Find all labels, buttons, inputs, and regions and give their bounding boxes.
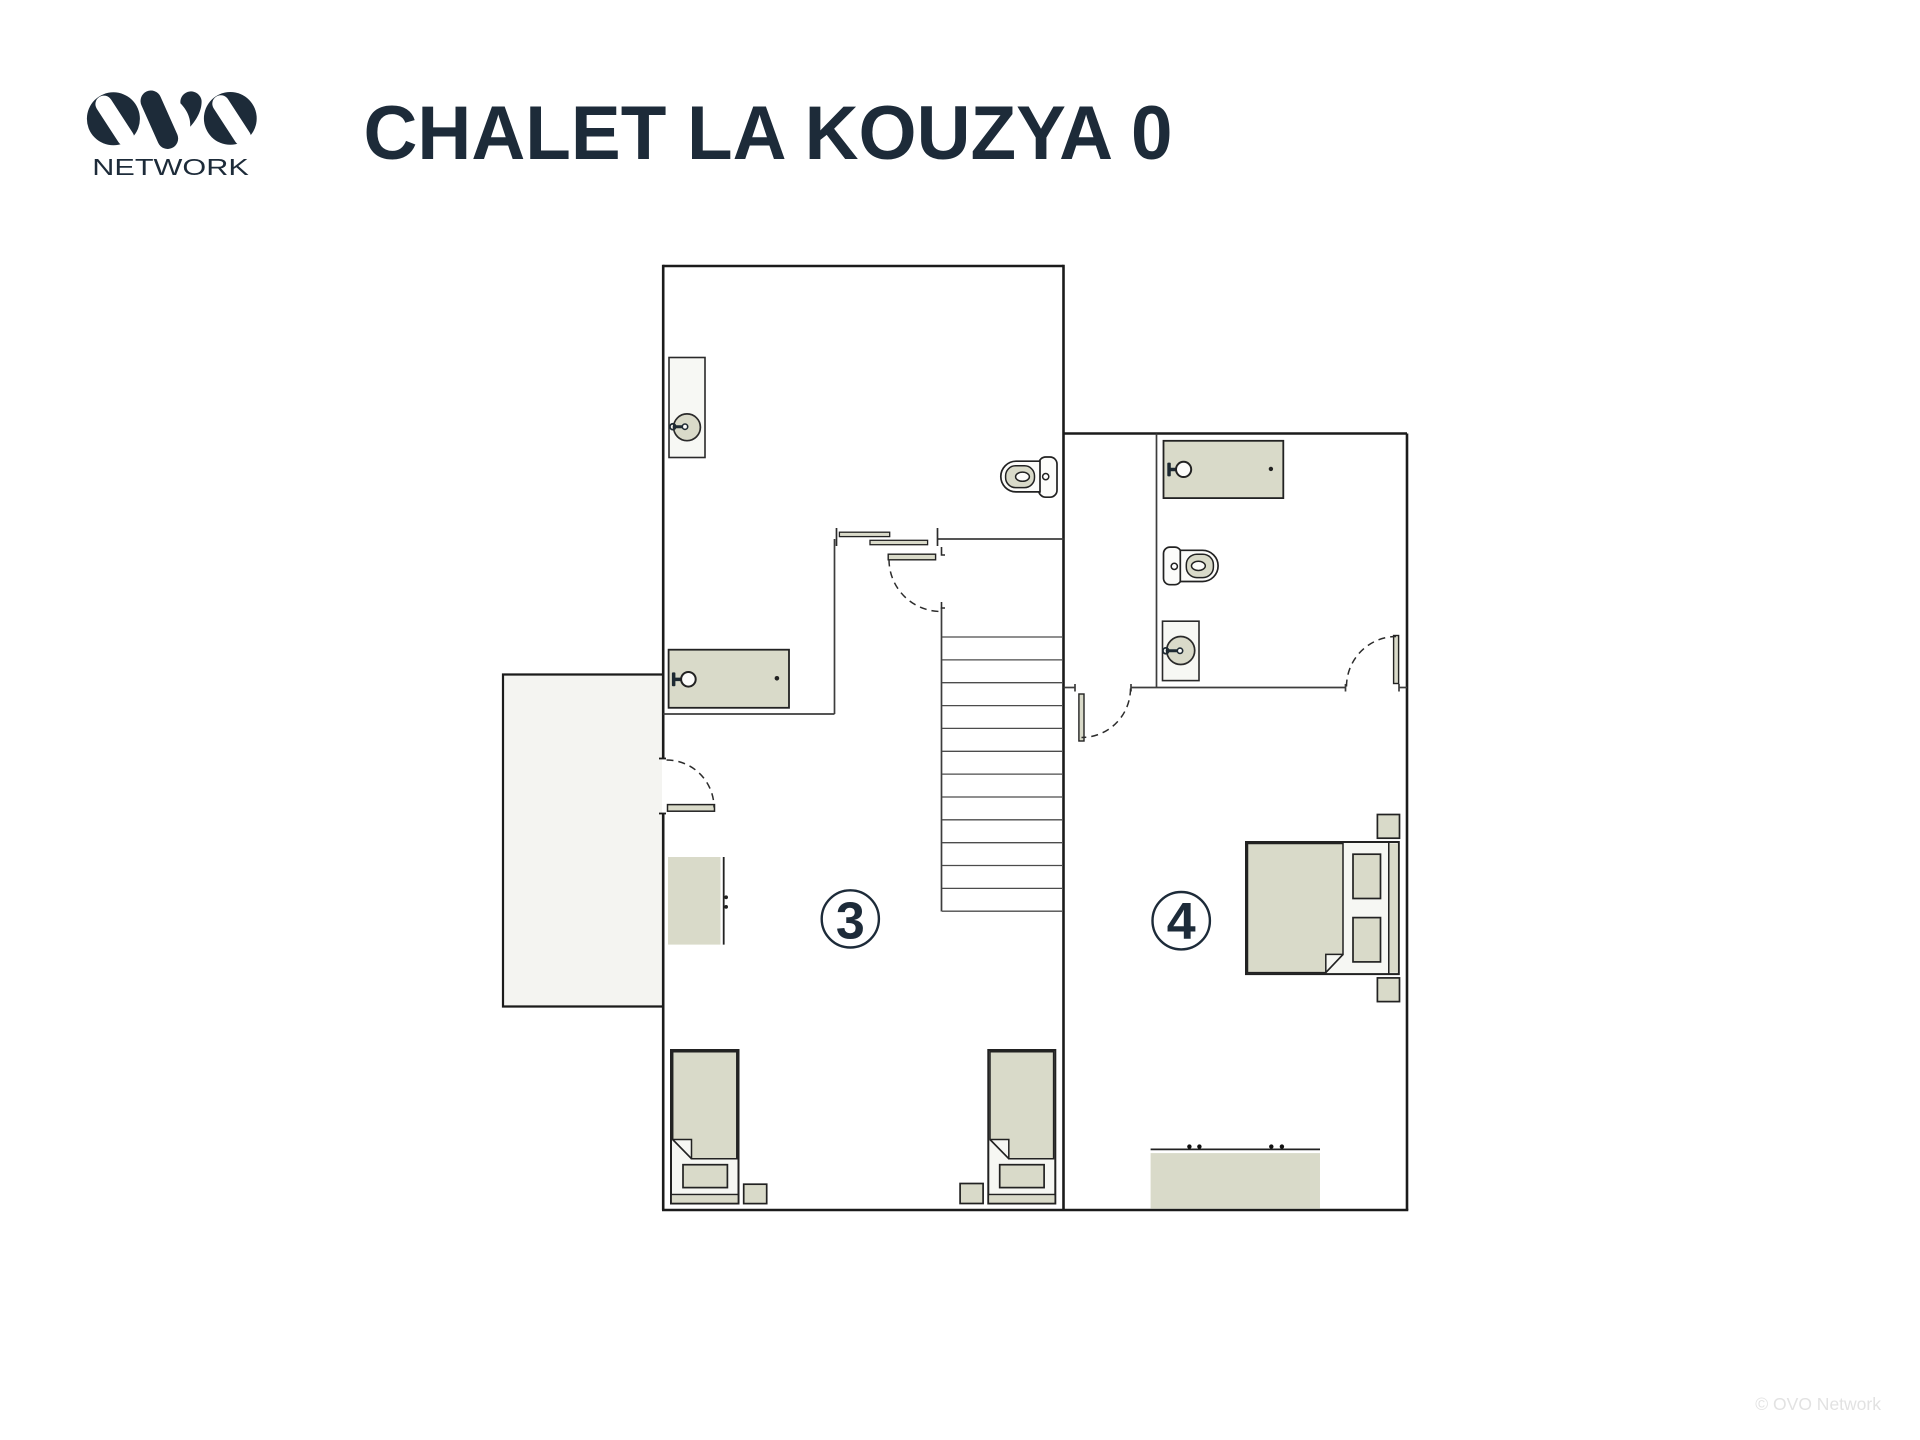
svg-text:© OVO Network: © OVO Network [1755, 1394, 1881, 1414]
svg-text:3: 3 [836, 893, 865, 951]
svg-text:CHALET LA KOUZYA 0: CHALET LA KOUZYA 0 [364, 91, 1173, 176]
svg-text:NETWORK: NETWORK [92, 154, 249, 180]
svg-text:4: 4 [1167, 893, 1196, 951]
